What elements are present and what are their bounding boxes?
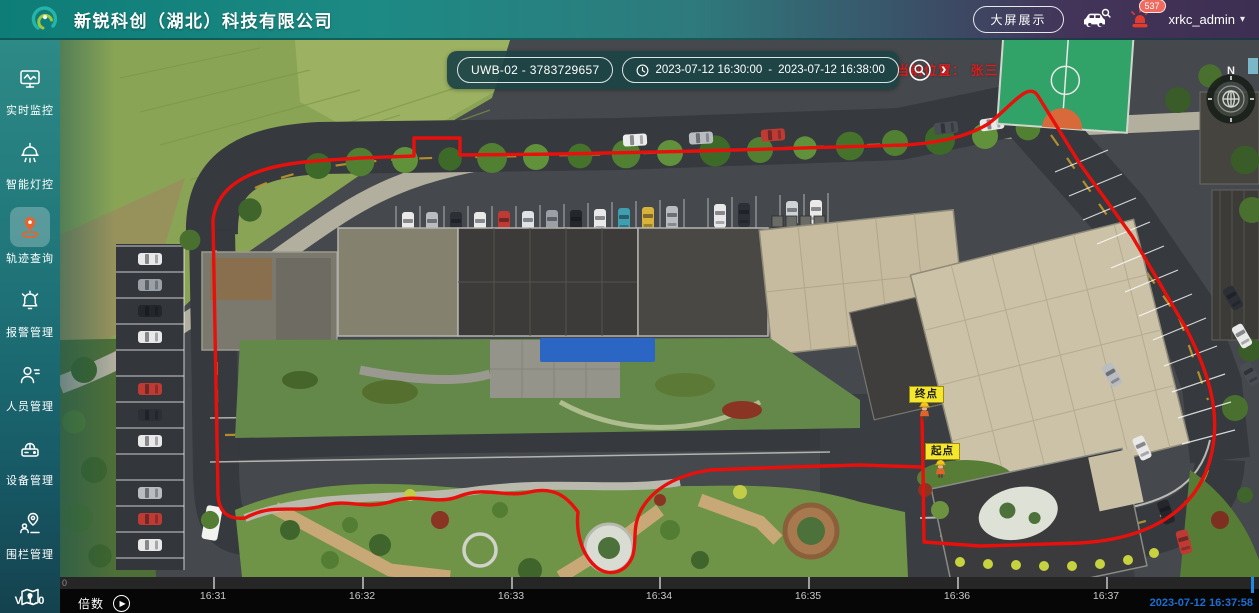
page-title: 新锐科创（湖北）科技有限公司 [74,7,333,32]
sidebar-item-smart-light[interactable]: 智能灯控 [0,126,60,200]
device-icon [10,429,50,469]
time-range-picker[interactable]: 2023-07-12 16:30:00 - 2023-07-12 16:38:0… [622,57,898,83]
sidebar-item-label: 报警管理 [6,324,54,340]
building-bottom-right [917,446,1157,577]
timeline-tick-strip: 16:31 16:32 16:33 16:34 16:35 16:36 16:3… [60,577,1259,589]
timeline-zero-label: 0 [62,578,67,588]
header-actions: 大屏展示 537 [973,6,1245,33]
map-canvas[interactable]: UWB-02 - 3783729657 2023-07-12 16:30:00 … [60,40,1259,577]
garden-bottom [235,482,908,577]
clock-icon [636,64,649,77]
start-point-figure-icon [934,459,947,478]
sidebar-item-alarm-mgmt[interactable]: 报警管理 [0,274,60,348]
alarm-count-badge: 537 [1139,0,1166,13]
track-icon [10,207,50,247]
sidebar-item-label: 设备管理 [6,472,54,488]
device-select-value: UWB-02 - 3783729657 [471,63,599,77]
big-screen-button[interactable]: 大屏展示 [973,6,1063,33]
sidebar-item-label: 轨迹查询 [6,250,54,266]
search-icon [908,58,932,82]
sidebar-item-label: 围栏管理 [6,546,54,562]
sidebar-item-label: 实时监控 [6,102,54,118]
sidebar-item-track-query[interactable]: 轨迹查询 [0,200,60,274]
speed-label: 倍数 [78,595,104,612]
fence-icon [10,503,50,543]
collapse-panel-button[interactable]: › [941,59,950,81]
end-time-value: 2023-07-12 16:38:00 [778,64,885,76]
alarm-notification-icon[interactable]: 537 [1129,8,1151,30]
app-root: 新锐科创（湖北）科技有限公司 大屏展示 [0,0,1259,613]
sidebar-item-realtime-monitor[interactable]: 实时监控 [0,52,60,126]
start-point-marker[interactable]: 起点 [925,443,960,460]
playback-timeline[interactable]: 16:31 16:32 16:33 16:34 16:35 16:36 16:3… [60,577,1259,613]
aerial-map-image [60,40,1259,577]
username-label: xrkc_admin [1169,12,1235,27]
company-logo-icon [30,4,60,34]
sidebar-item-personnel-mgmt[interactable]: 人员管理 [0,348,60,422]
search-button[interactable] [908,57,932,83]
top-header: 新锐科创（湖北）科技有限公司 大屏展示 [0,0,1259,40]
version-label: V 1.0 [0,595,60,607]
sidebar-item-label: 人员管理 [6,398,54,414]
person-icon [10,355,50,395]
compass-control[interactable]: N [1203,62,1259,126]
sidebar-item-device-mgmt[interactable]: 设备管理 [0,422,60,496]
sidebar-item-fence-mgmt[interactable]: 围栏管理 [0,496,60,570]
play-button[interactable]: ▶ [113,595,130,612]
chevron-right-icon: › [941,59,947,78]
courtyard [235,338,860,438]
range-separator: - [768,64,772,76]
playback-speed-box: 倍数 ▶ [78,595,130,612]
sports-court [997,40,1133,133]
device-select[interactable]: UWB-02 - 3783729657 [457,57,613,83]
sidebar-item-label: 智能灯控 [6,176,54,192]
timeline-playhead[interactable] [1251,577,1254,593]
end-point-figure-icon [918,401,931,420]
chevron-down-icon: ▾ [1240,14,1245,25]
play-icon: ▶ [119,599,125,608]
track-query-bar: UWB-02 - 3783729657 2023-07-12 16:30:00 … [447,51,899,89]
light-icon [10,133,50,173]
user-menu[interactable]: xrkc_admin ▾ [1169,12,1246,27]
compass-globe-icon [1223,91,1239,107]
start-time-value: 2023-07-12 16:30:00 [655,64,762,76]
monitor-icon [10,59,50,99]
sidebar-nav: 实时监控 智能灯控 轨迹查询 [0,40,60,613]
current-playback-time: 2023-07-12 16:37:58 [1150,597,1253,609]
alarm-bell-icon [10,281,50,321]
vehicle-search-icon[interactable] [1082,8,1111,30]
